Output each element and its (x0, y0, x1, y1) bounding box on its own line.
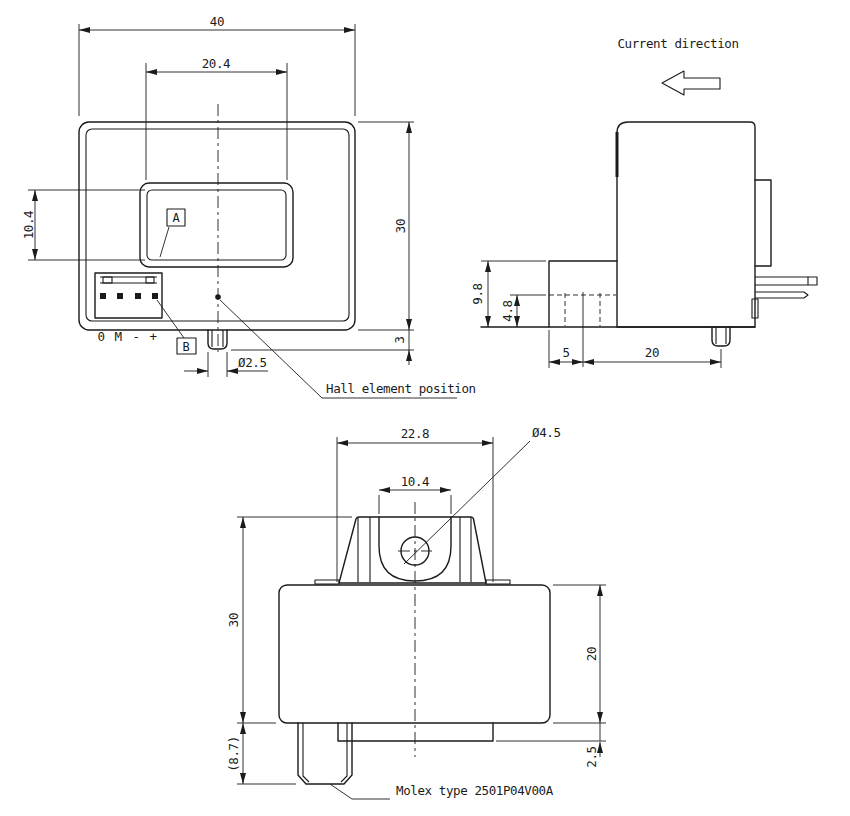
side-bracket (755, 180, 771, 266)
dim-slot-width: 10.4 (401, 474, 430, 489)
drawing-svg: 40 20.4 10.4 30 3 Ø2.5 Hall element posi… (0, 0, 850, 816)
molex-leader-line (330, 784, 390, 799)
label-b-leader (157, 300, 184, 338)
bracket-foot-right (486, 580, 510, 584)
molex-annotation: Molex type 2501P04V00A (396, 783, 554, 798)
dim-connector-depth: (8.7) (226, 736, 241, 772)
bottom-body-outline (279, 585, 550, 723)
bottom-view-dimensions: 22.8 10.4 Ø4.5 30 (8.7) 20 2.5 Molex typ… (226, 425, 606, 799)
dim-body-depth: 20 (584, 647, 599, 661)
front-bottom-pin (208, 330, 227, 349)
front-window-inner (147, 190, 286, 260)
label-a: A (172, 211, 180, 225)
dim-pin-position: 20 (645, 345, 659, 360)
dim-overall-height: 30 (393, 219, 408, 233)
bottom-bracket (315, 517, 510, 584)
front-view-dimensions: 40 20.4 10.4 30 3 Ø2.5 Hall element posi… (21, 14, 476, 398)
pin-label-plus: + (149, 329, 156, 344)
current-direction-arrow-icon (662, 71, 720, 95)
current-direction-heading: Current direction (617, 36, 738, 51)
connector-pin-2 (117, 293, 123, 299)
technical-drawing-sheet: 40 20.4 10.4 30 3 Ø2.5 Hall element posi… (0, 0, 850, 816)
dim-window-width: 20.4 (202, 56, 231, 71)
dim-pin-protrusion: 3 (392, 336, 407, 343)
dim-overall-width: 40 (210, 14, 224, 29)
label-a-leader (160, 227, 169, 257)
side-bottom-pin (712, 327, 730, 346)
bottom-base-plate (338, 723, 493, 741)
side-pins (752, 277, 817, 318)
front-window-outline (140, 183, 293, 267)
hall-annotation: Hall element position (326, 381, 476, 396)
dim-connector-offset: 5 (562, 345, 569, 360)
side-body-outline (617, 122, 755, 327)
label-b: B (182, 340, 189, 354)
bottom-molex-connector (298, 723, 352, 784)
pin-label-m: M (114, 329, 121, 344)
dim-hole-diameter: Ø4.5 (532, 425, 561, 440)
hole-leader-line (404, 441, 530, 564)
pin-label-minus: - (132, 329, 139, 344)
dim-pin-level: 4.8 (500, 300, 515, 321)
connector-pin-1 (100, 293, 106, 299)
dim-window-height: 10.4 (21, 211, 36, 240)
dim-base-plate-thickness: 2.5 (584, 746, 599, 767)
side-view-dimensions: 9.8 4.8 5 20 (470, 261, 721, 368)
side-view: Current direction (481, 36, 817, 367)
dim-bracket-width: 22.8 (401, 426, 430, 441)
pin-label-0: 0 (97, 329, 104, 344)
bottom-view (279, 502, 550, 784)
dim-body-height: 30 (226, 613, 241, 627)
front-body-inner-wall (86, 129, 349, 321)
connector-pin-3 (135, 293, 141, 299)
front-connector (95, 273, 162, 318)
dim-pin-diameter: Ø2.5 (238, 355, 267, 370)
front-view (79, 104, 355, 352)
bracket-foot-left (315, 580, 339, 584)
side-hidden-pins (549, 293, 616, 326)
dim-connector-height: 9.8 (470, 283, 485, 304)
connector-pin-4 (152, 293, 158, 299)
